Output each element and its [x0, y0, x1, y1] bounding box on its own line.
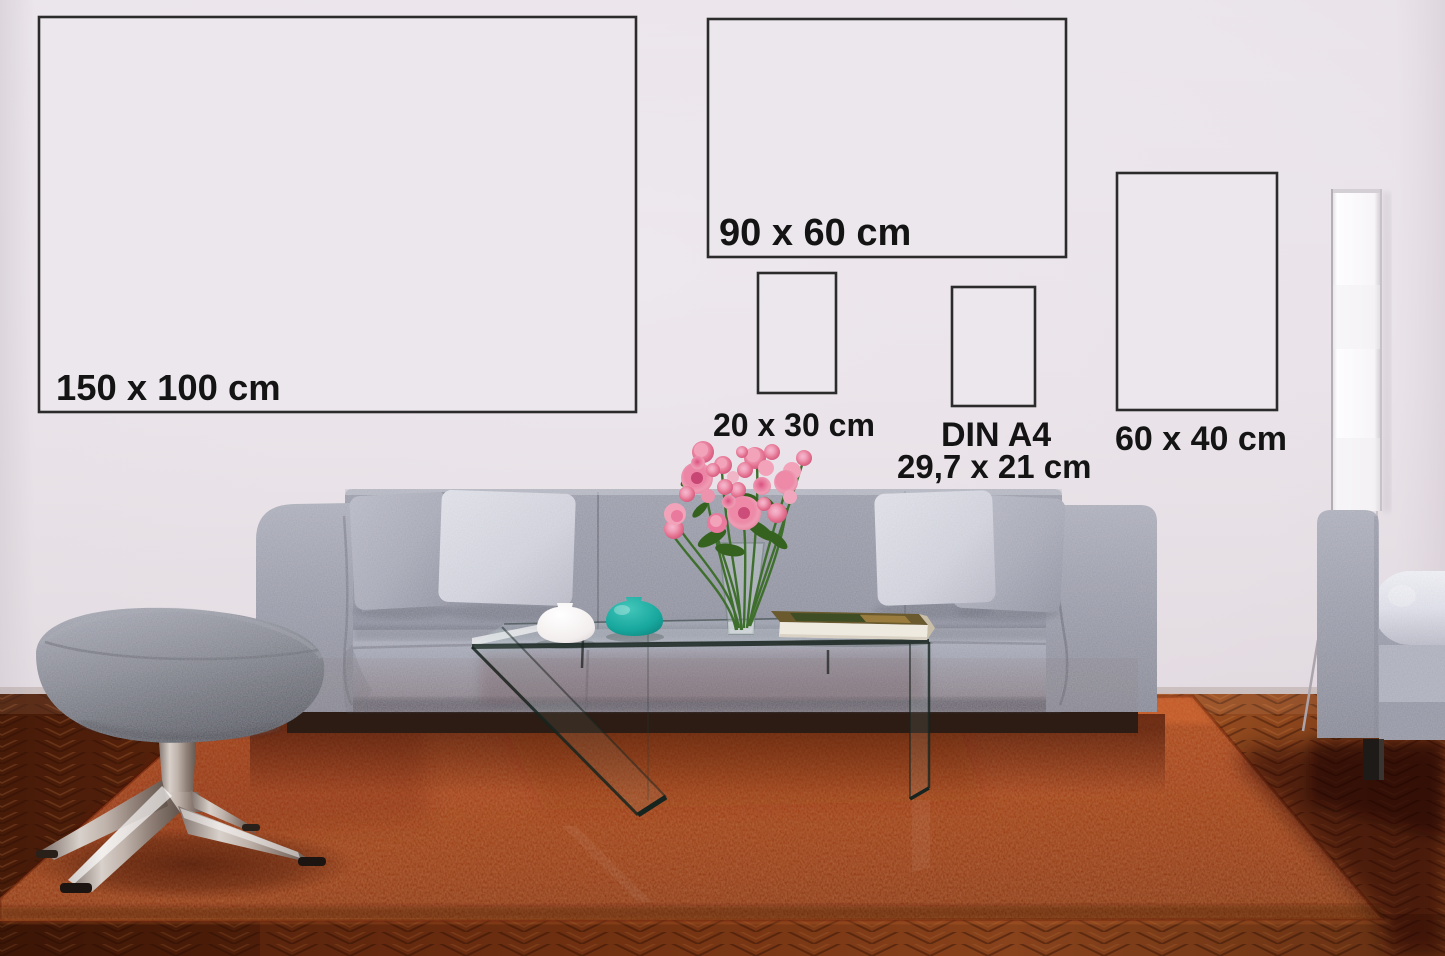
svg-text:90 x 60 cm: 90 x 60 cm	[719, 212, 911, 254]
svg-text:29,7 x 21 cm: 29,7 x 21 cm	[897, 448, 1092, 485]
svg-text:60 x 40 cm: 60 x 40 cm	[1115, 420, 1287, 458]
svg-text:150 x 100 cm: 150 x 100 cm	[56, 367, 281, 408]
svg-text:20 x 30 cm: 20 x 30 cm	[713, 407, 875, 443]
